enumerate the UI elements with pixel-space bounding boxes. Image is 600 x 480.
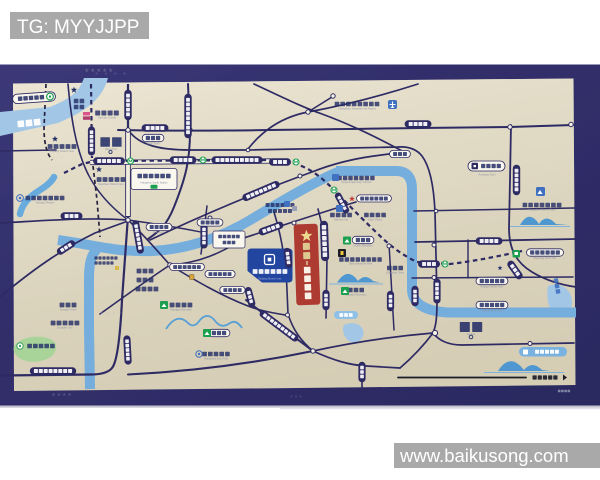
svg-text:Hangzhou Eco Park: Hangzhou Eco Park bbox=[204, 356, 229, 360]
svg-text:* * * *: * * * * bbox=[100, 310, 122, 320]
svg-text:Ziwei Plaza: Ziwei Plaza bbox=[368, 217, 382, 221]
svg-text:Qianqing Town: Qianqing Town bbox=[386, 270, 404, 274]
svg-text:Niutou Mountain: Niutou Mountain bbox=[354, 243, 373, 247]
svg-text:* * * *: * * * * bbox=[52, 392, 71, 401]
svg-text:Binjiang District Gov.: Binjiang District Gov. bbox=[50, 149, 75, 153]
svg-text:* * * * *: * * * * * bbox=[85, 67, 113, 77]
svg-text:Marriott Intl: Marriott Intl bbox=[334, 217, 348, 221]
svg-text:Xianghu Resort: Xianghu Resort bbox=[36, 200, 55, 204]
svg-text:Anchang Town: Anchang Town bbox=[479, 173, 497, 177]
svg-text:Olympic Center: Olympic Center bbox=[98, 116, 117, 120]
svg-text:Wangjia Mountain: Wangjia Mountain bbox=[170, 307, 192, 311]
svg-text:www.baikusong.com: www.baikusong.com bbox=[399, 445, 569, 466]
svg-text:TG: MYYJJPP: TG: MYYJJPP bbox=[17, 17, 139, 38]
svg-text:Xiaoshan District Gov.: Xiaoshan District Gov. bbox=[98, 182, 125, 186]
svg-text:Shaoxing North Sta.: Shaoxing North Sta. bbox=[533, 256, 556, 260]
svg-text:* * *: * * * bbox=[520, 200, 536, 210]
svg-text:Hangzhou South Station: Hangzhou South Station bbox=[140, 182, 168, 185]
svg-text:Suoqian Gov.: Suoqian Gov. bbox=[57, 325, 73, 329]
svg-text:Suoqian Town: Suoqian Town bbox=[60, 307, 77, 311]
svg-text:Hangzhou Xiaoshan Intl Airport: Hangzhou Xiaoshan Intl Airport bbox=[338, 106, 375, 110]
svg-text:Zhejiang Shuren Univ.: Zhejiang Shuren Univ. bbox=[258, 278, 282, 281]
svg-text:Data Industrial Park: Data Industrial Park bbox=[349, 262, 373, 266]
svg-text:Yangxunqiao Exp. School: Yangxunqiao Exp. School bbox=[341, 180, 372, 184]
svg-text:* * *: * * * bbox=[290, 395, 302, 402]
svg-text:Keqiao Textile City: Keqiao Textile City bbox=[481, 308, 503, 312]
svg-text:Xinjie Town: Xinjie Town bbox=[146, 141, 160, 145]
svg-text:Xintang St.: Xintang St. bbox=[153, 230, 166, 234]
svg-text:Keqiao District Gov.: Keqiao District Gov. bbox=[481, 284, 504, 288]
